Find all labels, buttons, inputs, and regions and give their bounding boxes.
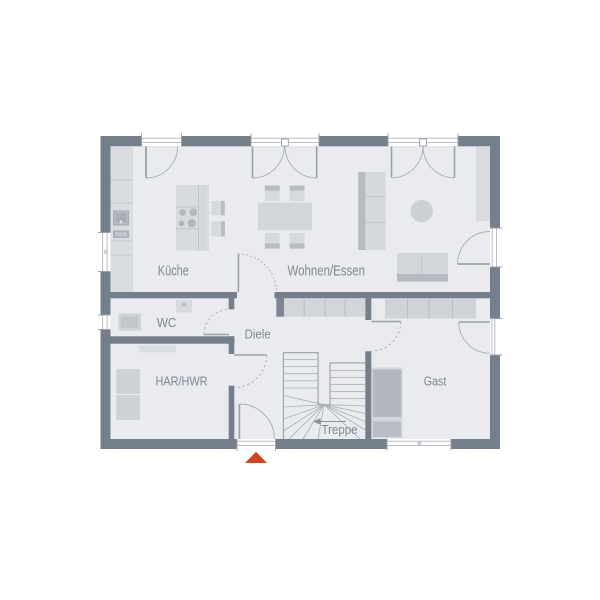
svg-text:Wohnen/Essen: Wohnen/Essen [288,264,366,280]
svg-text:Diele: Diele [245,328,271,342]
svg-text:HAR/HWR: HAR/HWR [156,375,208,389]
svg-text:Treppe: Treppe [322,423,358,437]
svg-text:Gast: Gast [424,374,447,388]
svg-text:Küche: Küche [158,264,189,280]
svg-text:WC: WC [157,316,176,330]
